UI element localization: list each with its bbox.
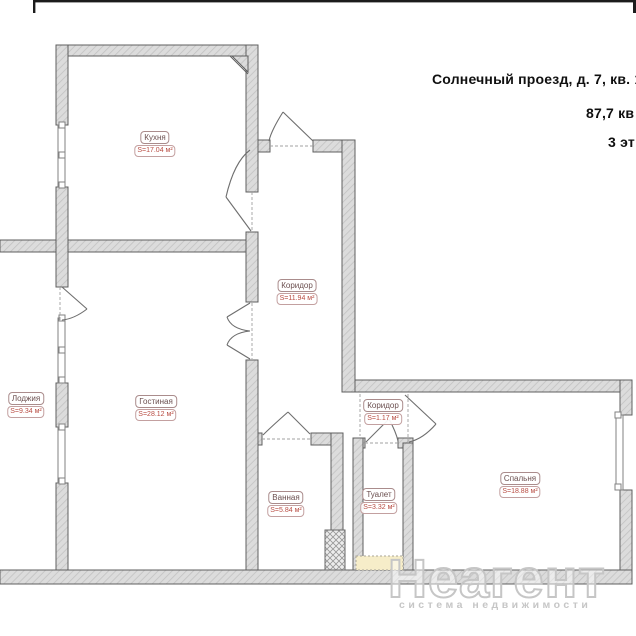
room-name: Спальня: [500, 472, 540, 485]
room-area: S=9.34 м²: [7, 406, 44, 418]
floor-plan-drawing: [0, 0, 636, 636]
floor-plan-image: Солнечный проезд, д. 7, кв. 1 87,7 кв 3 …: [0, 0, 636, 636]
room-name: Лоджия: [8, 392, 44, 405]
room-name: Коридор: [363, 399, 403, 412]
watermark-tagline: система недвижимости: [399, 599, 591, 611]
room-label-living-room: Гостиная S=28.12 м²: [135, 395, 177, 421]
door-openings-layer: [60, 146, 408, 443]
room-label-loggia: Лоджия S=9.34 м²: [7, 392, 44, 418]
room-label-toilet: Туалет S=3.32 м²: [360, 488, 397, 514]
room-area: S=28.12 м²: [135, 409, 176, 421]
vent-shaft: [325, 530, 345, 570]
frame-border: [33, 0, 636, 13]
room-label-corridor-main: Коридор S=11.94 м²: [277, 279, 318, 305]
room-name: Туалет: [362, 488, 395, 501]
room-name: Кухня: [140, 131, 169, 144]
room-label-corridor-small: Коридор S=1.17 м²: [363, 399, 403, 425]
room-area: S=5.84 м²: [267, 505, 304, 517]
room-area: S=1.17 м²: [364, 413, 401, 425]
living-room-double-door: [227, 303, 250, 359]
corner-flue: [232, 56, 248, 72]
room-area: S=3.32 м²: [360, 502, 397, 514]
entrance-door: [269, 112, 313, 141]
room-label-bathroom: Ванная S=5.84 м²: [267, 491, 304, 517]
total-area-text: 87,7 кв: [586, 105, 634, 121]
bedroom-door: [405, 395, 436, 442]
address-title: Солнечный проезд, д. 7, кв. 1: [432, 71, 636, 87]
room-name: Гостиная: [135, 395, 177, 408]
room-name: Коридор: [277, 279, 317, 292]
floor-number-text: 3 эт: [608, 134, 635, 150]
room-area: S=18.88 м²: [499, 486, 540, 498]
balcony-door: [62, 287, 87, 320]
room-label-bedroom: Спальня S=18.88 м²: [499, 472, 540, 498]
walls-layer: [0, 45, 632, 584]
room-name: Ванная: [268, 491, 303, 504]
bathroom-door: [263, 412, 310, 435]
room-label-kitchen: Кухня S=17.04 м²: [134, 131, 175, 157]
room-area: S=11.94 м²: [277, 293, 318, 305]
room-area: S=17.04 м²: [134, 145, 175, 157]
